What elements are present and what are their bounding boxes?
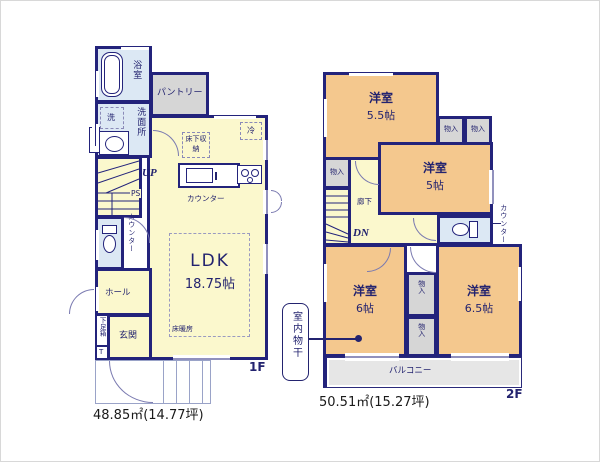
floor2-tag: 2F — [506, 387, 523, 401]
closet-label: 物入 — [417, 323, 426, 353]
floor1-tag: 1F — [249, 360, 266, 374]
window — [349, 69, 393, 76]
room-se-label: 洋室 — [439, 282, 519, 299]
dn-label: DN — [353, 227, 369, 241]
window — [518, 267, 525, 301]
floor1-area-text: 48.85㎡(14.77坪) — [93, 404, 204, 423]
door-arc — [410, 247, 436, 273]
porch-step — [189, 360, 190, 403]
closet-label: 物入 — [417, 280, 426, 310]
door-arc — [271, 190, 282, 201]
balcony-label: バルコニー — [389, 366, 431, 377]
room-ne-size: 5帖 — [395, 177, 475, 193]
shoe-box-label: 下足箱 — [98, 317, 106, 345]
closet-label: 物入 — [330, 168, 344, 177]
counter-2f-label: カウンター — [499, 204, 508, 246]
stairs-1f-treads — [98, 159, 139, 215]
bathtub-icon — [101, 52, 123, 97]
kitchen-counter-label: カウンター — [187, 194, 225, 203]
ps-stairs-label: PS — [130, 189, 141, 198]
porch-step — [163, 360, 164, 403]
room-se-label-block: 洋室 6.5帖 — [439, 282, 519, 316]
door-arc — [271, 202, 282, 213]
room-ne-label: 洋室 — [395, 159, 475, 176]
window — [263, 190, 271, 214]
window — [263, 244, 271, 274]
door-arc — [69, 289, 94, 314]
laundry-label: 洗 — [107, 113, 115, 123]
up-label: UP — [142, 167, 157, 181]
room-sw-size: 6帖 — [325, 300, 405, 316]
indoor-laundry-label: 室内物干 — [289, 311, 302, 375]
window — [214, 112, 256, 119]
hall-label: ホール — [105, 288, 131, 299]
shoe-box-t-label: T — [99, 348, 103, 357]
toilet-icon-1f — [102, 225, 117, 234]
ldk-label-block: LDK 18.75帖 — [169, 251, 251, 292]
closet-label: 物入 — [471, 125, 485, 134]
window — [345, 353, 399, 361]
entrance-label: 玄関 — [119, 331, 137, 342]
callout-line — [309, 338, 359, 340]
stairs-2f-treads — [326, 190, 348, 243]
room-ne-label-block: 洋室 5帖 — [395, 159, 475, 193]
hallway-label: 廊下 — [357, 197, 372, 206]
porch-step — [202, 360, 203, 403]
washroom-label: 洗面所 — [134, 107, 145, 155]
window — [92, 230, 99, 260]
ldk-size-label: 18.75帖 — [169, 273, 251, 292]
room-nw-size: 5.5帖 — [341, 107, 421, 123]
floorplan-canvas: 浴室 洗 洗面所 PS パントリー UP PS カウンター ホール 玄関 下足箱… — [0, 0, 600, 462]
bath-label: 浴室 — [130, 60, 141, 100]
underfloor-storage-label: 床下収納 — [185, 135, 207, 155]
room-sw-label-block: 洋室 6帖 — [325, 282, 405, 316]
window — [92, 71, 99, 97]
fridge-label: 冷 — [247, 126, 255, 136]
ldk-label: LDK — [169, 251, 251, 271]
room-se-size: 6.5帖 — [439, 300, 519, 316]
window — [320, 99, 327, 137]
room-nw-label: 洋室 — [341, 89, 421, 106]
washbasin-icon — [99, 131, 129, 155]
floor-heating-label: 床暖房 — [172, 325, 193, 334]
toilet-bowl-icon-2f — [452, 223, 469, 236]
window — [121, 43, 149, 50]
floor2-area-text: 50.51㎡(15.27坪) — [319, 391, 430, 410]
window — [489, 170, 497, 204]
closet-label: 物入 — [444, 125, 458, 134]
room-nw-label-block: 洋室 5.5帖 — [341, 89, 421, 123]
room-sw-label: 洋室 — [325, 282, 405, 299]
window — [320, 264, 327, 302]
kitchen-sink-icon — [186, 168, 213, 183]
porch-step — [176, 360, 177, 403]
kitchen-faucet-icon — [215, 172, 217, 180]
window — [92, 124, 99, 146]
toilet-tank-icon-2f — [469, 221, 478, 238]
window — [451, 353, 509, 361]
pantry-label: パントリー — [157, 88, 202, 99]
stove-icon — [237, 165, 262, 184]
window — [263, 140, 271, 160]
callout-dot — [355, 335, 362, 342]
toilet-bowl-icon-1f — [103, 235, 116, 253]
